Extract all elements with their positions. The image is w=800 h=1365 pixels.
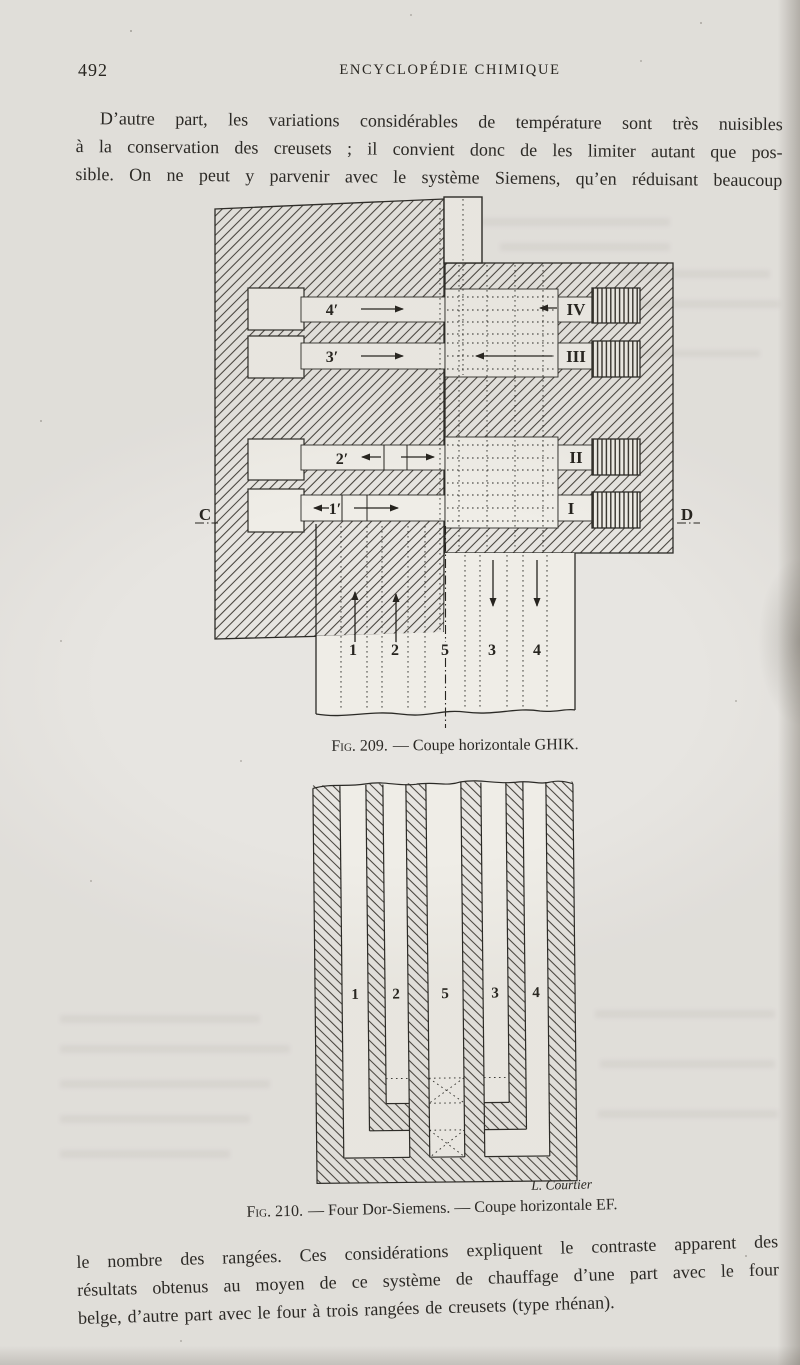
paragraph-top: D’autre part, les variations considérabl… <box>75 104 783 194</box>
label-section-C: C <box>199 505 211 524</box>
label-channel-3: 3′ <box>326 349 339 366</box>
book-page: 492 ENCYCLOPÉDIE CHIMIQUE D’autre part, … <box>0 0 800 1365</box>
paragraph-bottom: le nombre des rangées. Ces considération… <box>76 1227 780 1332</box>
label-flue-3: 3 <box>488 642 496 659</box>
figure-210-furnace-cross-section: 1 2 5 3 4 <box>311 776 585 1199</box>
bleedthrough-artifact <box>60 1015 260 1023</box>
engraver-signature: L. Courtier <box>462 1177 592 1196</box>
page-number: 492 <box>78 60 108 81</box>
label-regenerator-I: I <box>568 499 575 518</box>
label-regenerator-III: III <box>566 347 586 366</box>
masonry-hatched-blocks <box>215 199 673 639</box>
figure-209-caption-text: — Coupe horizontale GHIK. <box>393 736 579 754</box>
bleedthrough-artifact <box>600 1060 775 1068</box>
figure-210-caption-text: — Four Dor-Siemens. — Coupe horizontale … <box>308 1196 618 1219</box>
paper-speckles <box>0 0 2 2</box>
figure-209-caption: Fig. 209.— Coupe horizontale GHIK. <box>195 735 715 757</box>
figure-210-caption: Fig. 210.— Four Dor-Siemens. — Coupe hor… <box>172 1195 692 1224</box>
label-channel-4: 4′ <box>326 302 339 319</box>
text-line: sible. On ne peut y parvenir avec le sys… <box>75 160 782 194</box>
label-flue-5: 5 <box>441 642 449 659</box>
bleedthrough-artifact <box>598 1110 778 1118</box>
bleedthrough-artifact <box>595 1010 775 1018</box>
label-flue-2: 2 <box>391 642 399 659</box>
figure-209-furnace-cross-section: 4′ 3′ 2′ 1′ IV III II I C D 1 2 5 3 4 <box>195 193 700 738</box>
label-regenerator-II: II <box>569 448 583 467</box>
label-section-D: D <box>681 505 693 524</box>
label-regenerator-IV: IV <box>567 300 587 319</box>
label-flue-5: 5 <box>441 986 449 1002</box>
label-channel-1: 1′ <box>329 501 342 518</box>
label-flue-2: 2 <box>392 987 400 1003</box>
bleedthrough-artifact <box>60 1080 270 1088</box>
bleedthrough-artifact <box>60 1115 250 1123</box>
bleedthrough-artifact <box>60 1045 290 1053</box>
label-flue-3: 3 <box>491 985 499 1001</box>
bleedthrough-artifact <box>60 1150 230 1158</box>
label-flue-4: 4 <box>532 985 540 1001</box>
label-flue-1: 1 <box>351 987 359 1003</box>
figure-209-number: Fig. 209. <box>331 737 388 754</box>
running-title: ENCYCLOPÉDIE CHIMIQUE <box>250 62 650 79</box>
label-channel-2: 2′ <box>336 451 349 468</box>
label-flue-4: 4 <box>533 642 541 659</box>
figure-210-number: Fig. 210. <box>246 1203 303 1221</box>
label-flue-1: 1 <box>349 642 357 659</box>
